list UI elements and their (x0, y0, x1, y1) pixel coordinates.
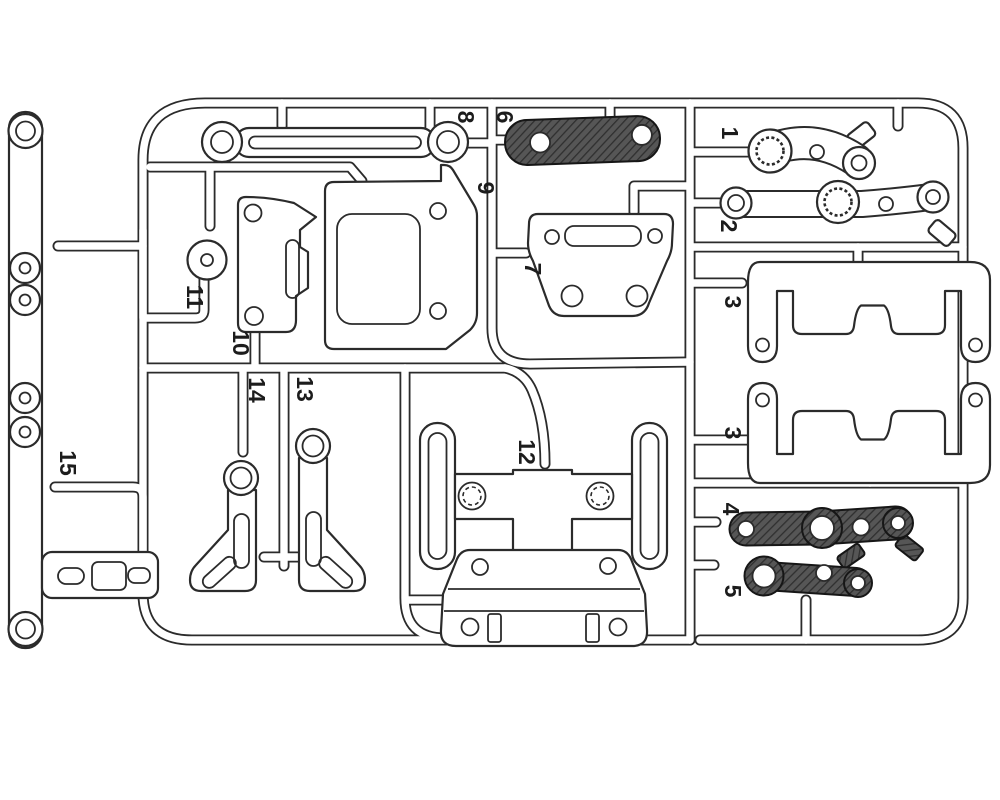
part-13-stand (296, 429, 365, 591)
label-part-7: 7 (520, 263, 546, 276)
label-part-11: 11 (182, 285, 208, 310)
part-11-washer (188, 241, 227, 280)
label-part-5: 5 (720, 585, 746, 598)
part-10-bracket (238, 197, 316, 332)
label-part-2: 2 (716, 220, 742, 233)
label-part-15: 15 (55, 450, 81, 476)
part-9-plate (325, 165, 477, 349)
label-part-10: 10 (228, 330, 254, 356)
label-part-8: 8 (453, 111, 479, 124)
label-part-13: 13 (292, 376, 318, 402)
part-3-bracket-bottom (748, 383, 990, 483)
part-1-steering-arm (749, 121, 877, 179)
sprue-diagram: 1 2 3 3 4 5 6 7 8 9 10 11 12 13 14 15 (0, 0, 1000, 800)
part-3-bracket-top (748, 262, 990, 362)
part-2-steering-link (721, 181, 958, 247)
part-7-plate (528, 214, 673, 316)
label-part-12: 12 (514, 439, 540, 465)
part-6-dark-pad (504, 115, 660, 165)
label-part-14: 14 (244, 377, 270, 403)
label-part-4: 4 (718, 503, 744, 516)
part-14-stand (190, 461, 258, 591)
label-part-1: 1 (717, 127, 743, 140)
sprue-diagram-svg: 1 2 3 3 4 5 6 7 8 9 10 11 12 13 14 15 (0, 0, 1000, 800)
label-part-9: 9 (473, 182, 499, 195)
part-15-long-link (9, 112, 159, 648)
label-part-3a: 3 (720, 296, 746, 309)
part-5-servo-horn (745, 543, 873, 597)
part-4-servo-horn (738, 508, 924, 562)
label-part-6: 6 (492, 111, 518, 124)
label-part-3b: 3 (720, 427, 746, 440)
